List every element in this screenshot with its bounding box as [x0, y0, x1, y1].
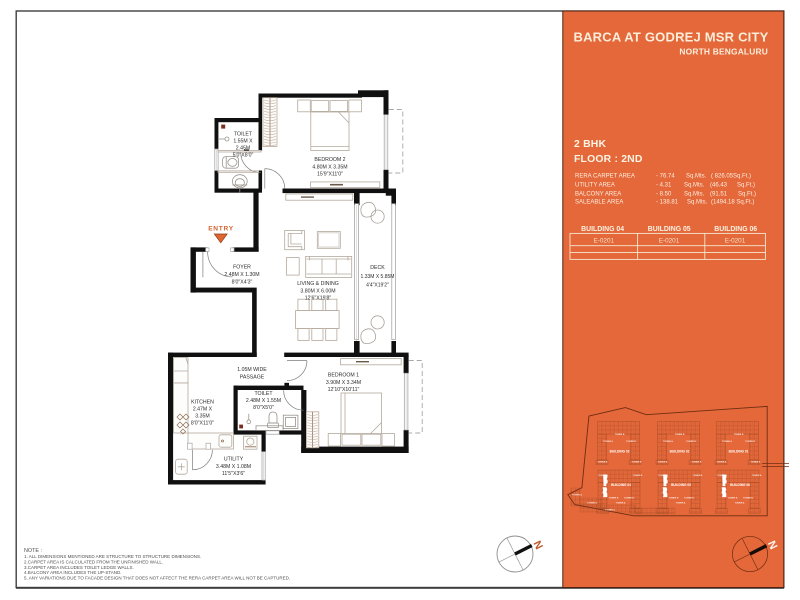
- svg-text:TOWER B: TOWER B: [686, 441, 696, 443]
- svg-text:Sq.Mts.: Sq.Mts.: [687, 200, 708, 206]
- svg-text:Sq.Ft.): Sq.Ft.): [738, 191, 756, 197]
- svg-text:TOWER A: TOWER A: [633, 474, 643, 477]
- svg-text:UTILITY: UTILITY: [224, 457, 244, 463]
- svg-text:E-0201: E-0201: [725, 238, 746, 245]
- svg-text:TOILET: TOILET: [254, 391, 273, 397]
- svg-text:5. ANY VARIATIONS DUE TO FACAD: 5. ANY VARIATIONS DUE TO FACADE DESIGN T…: [24, 576, 290, 581]
- svg-text:E-0201: E-0201: [593, 238, 614, 245]
- svg-text:TOWER B: TOWER B: [745, 441, 755, 443]
- svg-text:Sq.Mts.: Sq.Mts.: [686, 173, 707, 179]
- svg-text:BEDROOM 2: BEDROOM 2: [314, 157, 345, 163]
- svg-text:TOWER B: TOWER B: [609, 498, 619, 500]
- svg-text:5'0"X8'0": 5'0"X8'0": [233, 153, 254, 159]
- svg-text:8'0"X4'3": 8'0"X4'3": [232, 280, 253, 286]
- svg-text:Sq.Ft.): Sq.Ft.): [737, 182, 755, 188]
- svg-text:- 138.81: - 138.81: [656, 200, 679, 206]
- svg-text:SALEABLE AREA: SALEABLE AREA: [575, 200, 623, 206]
- svg-text:TOILET: TOILET: [234, 132, 253, 138]
- svg-text:- 4.31: - 4.31: [656, 182, 672, 188]
- svg-text:BUILDING 04: BUILDING 04: [611, 483, 631, 487]
- svg-text:1.55M X: 1.55M X: [233, 139, 253, 145]
- svg-text:- 76.74: - 76.74: [656, 173, 675, 179]
- svg-text:TOWER A: TOWER A: [616, 501, 626, 504]
- svg-text:TOWER B: TOWER B: [669, 498, 679, 500]
- svg-text:2.48M X 1.55M: 2.48M X 1.55M: [246, 398, 281, 404]
- svg-text:2 BHK: 2 BHK: [574, 139, 606, 150]
- svg-text:3.48M X 1.08M: 3.48M X 1.08M: [216, 464, 251, 470]
- svg-text:FOYER: FOYER: [233, 265, 251, 271]
- svg-text:(91.51: (91.51: [710, 191, 728, 197]
- svg-text:NORTH BENGALURU: NORTH BENGALURU: [679, 47, 768, 57]
- svg-text:PASSAGE: PASSAGE: [240, 375, 265, 381]
- svg-text:11'5"X3'6": 11'5"X3'6": [222, 471, 245, 477]
- svg-text:UTILITY AREA: UTILITY AREA: [575, 182, 615, 188]
- svg-text:BUILDING 02: BUILDING 02: [670, 449, 690, 453]
- svg-text:TOWER A: TOWER A: [587, 502, 597, 505]
- svg-text:BUILDING 01: BUILDING 01: [729, 449, 749, 453]
- svg-text:3.35M: 3.35M: [195, 414, 209, 420]
- svg-text:15'9"X11'0": 15'9"X11'0": [317, 172, 343, 178]
- svg-text:12'10"X10'11": 12'10"X10'11": [328, 387, 360, 393]
- svg-text:8'0"X11'0": 8'0"X11'0": [191, 421, 214, 427]
- svg-text:FLOOR : 2ND: FLOOR : 2ND: [574, 154, 643, 165]
- svg-text:3.90M X 3.34M: 3.90M X 3.34M: [326, 380, 361, 386]
- svg-text:Sq.Mts.: Sq.Mts.: [684, 191, 705, 197]
- svg-text:Sq.Mts.: Sq.Mts.: [684, 182, 705, 188]
- svg-text:BUILDING 03: BUILDING 03: [610, 449, 630, 453]
- svg-text:TOWER B: TOWER B: [615, 434, 625, 436]
- svg-text:DECK: DECK: [370, 265, 385, 271]
- svg-text:2.CARPET AREA IS CALCULATED FR: 2.CARPET AREA IS CALCULATED FROM THE UNF…: [24, 559, 163, 564]
- svg-text:TOWER A: TOWER A: [752, 474, 762, 477]
- svg-text:TOWER B: TOWER B: [692, 461, 702, 463]
- svg-text:TOWER B: TOWER B: [751, 461, 761, 463]
- svg-text:12'6"X19'8": 12'6"X19'8": [305, 295, 332, 301]
- svg-text:( 826.05Sq.Ft.): ( 826.05Sq.Ft.): [711, 173, 751, 179]
- svg-text:(46.43: (46.43: [710, 182, 728, 188]
- svg-text:1. ALL DIMENSIONS MENTIONED AR: 1. ALL DIMENSIONS MENTIONED ARE STRUCTUR…: [24, 554, 201, 559]
- svg-text:RERA CARPET AREA: RERA CARPET AREA: [575, 173, 635, 179]
- svg-text:E-0201: E-0201: [659, 238, 680, 245]
- svg-text:3.CARPET AREA INCLUDES TOILET: 3.CARPET AREA INCLUDES TOILET LEDGE WALL…: [24, 565, 134, 570]
- svg-text:ENTRY: ENTRY: [208, 226, 234, 233]
- svg-text:TOWER A: TOWER A: [676, 501, 686, 504]
- svg-text:2.45M: 2.45M: [236, 146, 250, 152]
- svg-text:BUILDING 05: BUILDING 05: [648, 226, 691, 233]
- svg-text:(1494.18 Sq.Ft.): (1494.18 Sq.Ft.): [711, 200, 754, 206]
- svg-text:TOWER A: TOWER A: [735, 501, 745, 504]
- svg-text:3.80M X 6.00M: 3.80M X 6.00M: [300, 288, 335, 294]
- svg-text:BALCONY AREA: BALCONY AREA: [575, 191, 621, 197]
- svg-text:BUILDING 04: BUILDING 04: [581, 226, 624, 233]
- svg-text:TOWER B: TOWER B: [658, 475, 668, 477]
- svg-text:BUILDING 06: BUILDING 06: [730, 483, 750, 487]
- svg-text:4.80M X 3.35M: 4.80M X 3.35M: [312, 165, 347, 171]
- svg-text:TOWER B: TOWER B: [743, 498, 753, 500]
- svg-text:2.47M X: 2.47M X: [193, 407, 213, 413]
- svg-text:TOWER A: TOWER A: [658, 460, 668, 463]
- svg-text:TOWER B: TOWER B: [626, 441, 636, 443]
- svg-text:TOWER B: TOWER B: [598, 475, 608, 477]
- svg-text:BEDROOM 1: BEDROOM 1: [328, 373, 359, 379]
- svg-text:TOWER B: TOWER B: [734, 434, 744, 436]
- svg-text:TOWER B: TOWER B: [675, 434, 685, 436]
- svg-text:1.33M X 5.85M: 1.33M X 5.85M: [361, 274, 395, 280]
- svg-text:TOWER A: TOWER A: [603, 440, 613, 443]
- svg-text:TOWER B: TOWER B: [624, 498, 634, 500]
- svg-text:TOWER A: TOWER A: [722, 440, 732, 443]
- svg-text:2.48M X 1.30M: 2.48M X 1.30M: [224, 272, 259, 278]
- svg-text:TOWER B: TOWER B: [684, 498, 694, 500]
- svg-text:1.05M WIDE: 1.05M WIDE: [237, 367, 267, 373]
- svg-text:BUILDING 06: BUILDING 06: [714, 226, 757, 233]
- svg-text:- 8.50: - 8.50: [656, 191, 672, 197]
- svg-text:TOWER B: TOWER B: [717, 475, 727, 477]
- svg-text:TOWER A: TOWER A: [572, 494, 582, 497]
- svg-text:TOWER A: TOWER A: [717, 460, 727, 463]
- svg-text:TOWER A: TOWER A: [605, 509, 615, 512]
- svg-text:KITCHEN: KITCHEN: [191, 400, 214, 406]
- svg-text:TOWER A: TOWER A: [663, 440, 673, 443]
- svg-text:TOWER A: TOWER A: [598, 460, 608, 463]
- svg-text:8'0"X5'0": 8'0"X5'0": [253, 405, 274, 411]
- svg-text:TOWER B: TOWER B: [728, 498, 738, 500]
- svg-text:BARCA AT GODREJ MSR CITY: BARCA AT GODREJ MSR CITY: [574, 30, 769, 45]
- svg-text:LIVING & DINING: LIVING & DINING: [297, 281, 339, 287]
- svg-text:4.BALCONY AREA INCLUDES THE UP: 4.BALCONY AREA INCLUDES THE UP-STAND.: [24, 570, 122, 575]
- svg-text:TOWER A: TOWER A: [693, 474, 703, 477]
- svg-text:BUILDING 05: BUILDING 05: [671, 483, 691, 487]
- svg-text:TOWER B: TOWER B: [632, 461, 642, 463]
- svg-text:NOTE :: NOTE :: [24, 548, 42, 554]
- svg-text:4'4"X19'2": 4'4"X19'2": [366, 283, 389, 289]
